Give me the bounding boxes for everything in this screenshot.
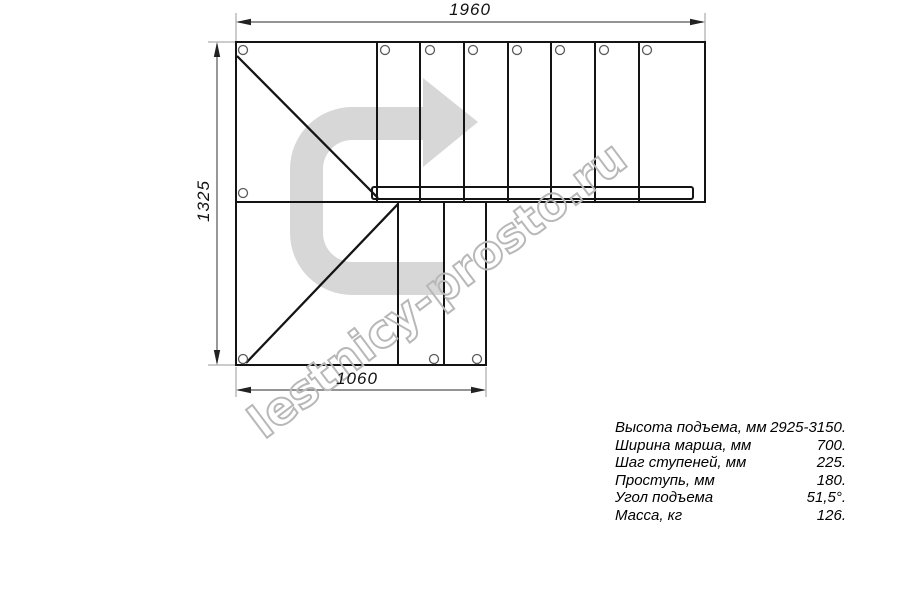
spec-label: Ширина марша, мм — [615, 437, 751, 455]
spec-value: 180. — [817, 472, 846, 490]
dimension-label-bottom: 1060 — [307, 369, 407, 389]
spec-label: Масса, кг — [615, 507, 682, 525]
spec-label: Высота подъема, мм — [615, 419, 767, 437]
spec-value: 700. — [817, 437, 846, 455]
spec-label: Проступь, мм — [615, 472, 715, 490]
dimension-arrowheads — [214, 19, 705, 393]
spec-label: Шаг ступеней, мм — [615, 454, 746, 472]
screw-hole — [556, 46, 565, 55]
screw-hole — [239, 46, 248, 55]
screw-hole — [600, 46, 609, 55]
screw-hole — [426, 46, 435, 55]
screw-hole — [381, 46, 390, 55]
screw-hole — [239, 355, 248, 364]
screw-hole — [239, 189, 248, 198]
screw-hole — [469, 46, 478, 55]
arrow-head — [423, 78, 478, 167]
spec-row: Ширина марша, мм 700. — [615, 437, 846, 455]
spec-value: 51,5°. — [807, 489, 846, 507]
spec-value: 126. — [817, 507, 846, 525]
spec-label: Угол подъема — [615, 489, 713, 507]
spec-row: Шаг ступеней, мм 225. — [615, 454, 846, 472]
spec-value: 225. — [817, 454, 846, 472]
dimension-label-top: 1960 — [420, 0, 520, 20]
specs-table: Высота подъема, мм 2925-3150. Ширина мар… — [615, 419, 846, 525]
spec-row: Масса, кг 126. — [615, 507, 846, 525]
screw-hole — [643, 46, 652, 55]
spec-value: 2925-3150. — [770, 419, 846, 437]
staircase-drawing-page: lestnicy-prosto.ru 1960 1325 1060 Высота… — [0, 0, 900, 600]
spec-row: Угол подъема 51,5°. — [615, 489, 846, 507]
screw-hole — [513, 46, 522, 55]
dimension-lines — [217, 22, 703, 390]
dimension-label-left: 1325 — [194, 166, 214, 236]
extension-lines — [208, 13, 705, 397]
screw-hole — [430, 355, 439, 364]
screw-hole — [473, 355, 482, 364]
spec-row: Проступь, мм 180. — [615, 472, 846, 490]
spec-row: Высота подъема, мм 2925-3150. — [615, 419, 846, 437]
